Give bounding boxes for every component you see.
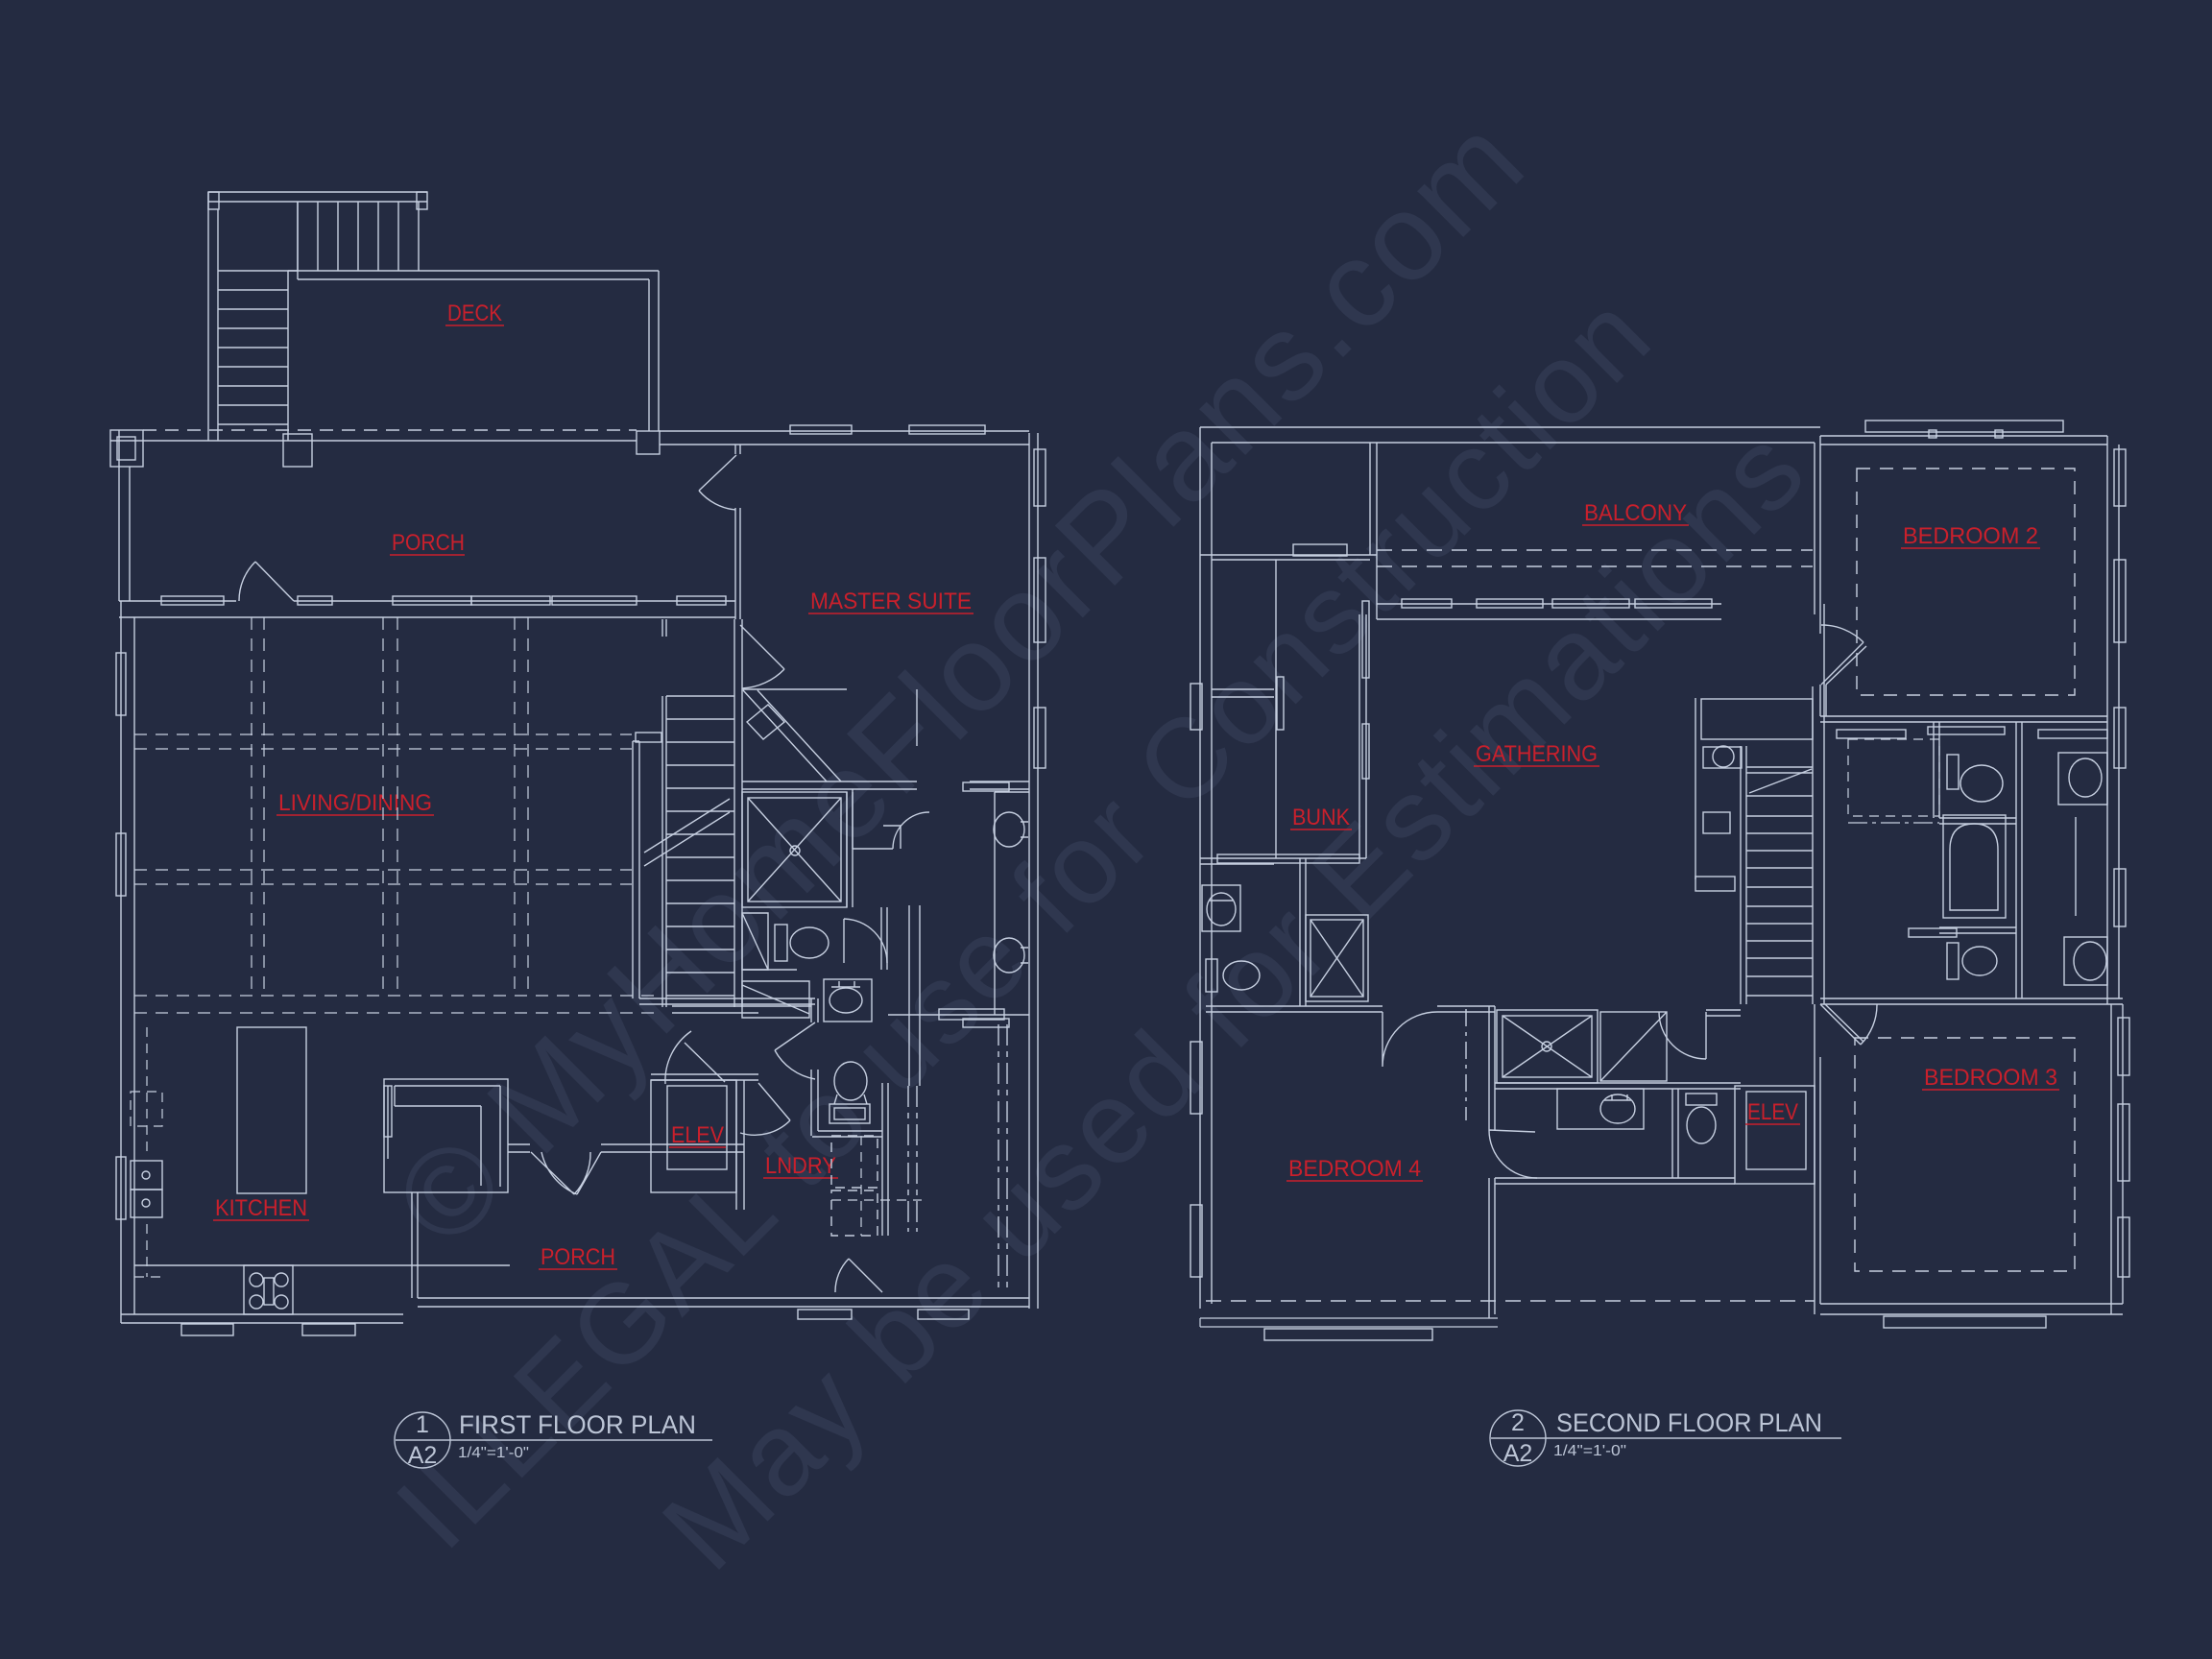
svg-text:GATHERING: GATHERING [1476,741,1598,767]
svg-text:LNDRY: LNDRY [765,1153,836,1179]
svg-text:1/4"=1'-0": 1/4"=1'-0" [458,1445,529,1461]
svg-text:MASTER SUITE: MASTER SUITE [810,589,972,614]
svg-text:SECOND FLOOR PLAN: SECOND FLOOR PLAN [1556,1408,1822,1437]
svg-text:1: 1 [416,1411,429,1438]
svg-text:PORCH: PORCH [392,530,465,556]
svg-text:PORCH: PORCH [541,1244,615,1270]
svg-text:1/4"=1'-0": 1/4"=1'-0" [1553,1443,1626,1459]
svg-text:BEDROOM 3: BEDROOM 3 [1924,1065,2057,1091]
svg-text:2: 2 [1511,1409,1525,1436]
svg-text:LIVING/DINING: LIVING/DINING [278,790,432,816]
svg-text:BUNK: BUNK [1292,805,1350,830]
svg-text:A2: A2 [408,1442,438,1469]
svg-text:KITCHEN: KITCHEN [215,1195,307,1221]
svg-text:DECK: DECK [447,301,502,326]
svg-text:A2: A2 [1503,1440,1533,1467]
svg-text:BEDROOM 4: BEDROOM 4 [1288,1156,1421,1182]
svg-text:ELEV: ELEV [1747,1099,1798,1125]
svg-text:BALCONY: BALCONY [1584,500,1687,526]
svg-text:FIRST FLOOR PLAN: FIRST FLOOR PLAN [459,1410,696,1439]
svg-text:BEDROOM 2: BEDROOM 2 [1903,523,2038,549]
